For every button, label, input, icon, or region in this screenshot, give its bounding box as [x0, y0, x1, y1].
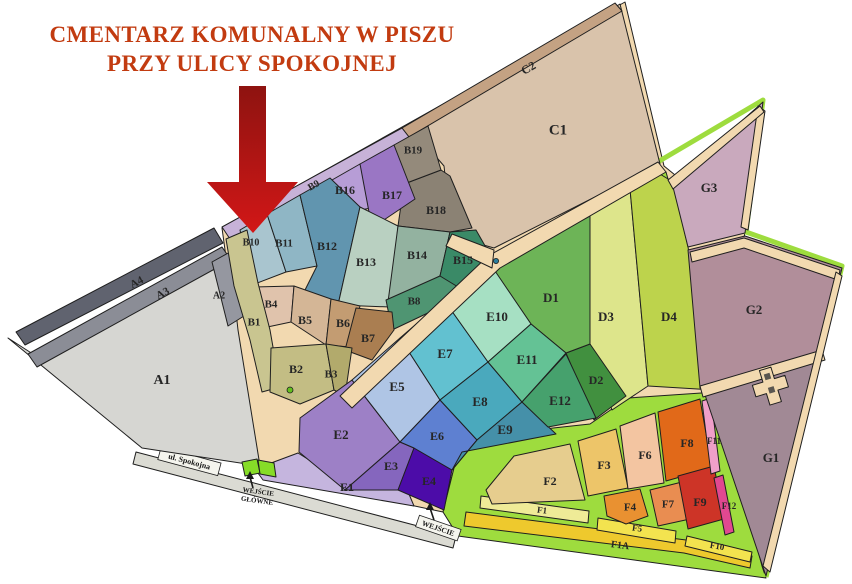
section-a1-label: A1: [153, 373, 170, 388]
section-a2-label: A2: [213, 290, 225, 301]
section-b5-label: B5: [298, 313, 312, 327]
section-b2-label: B2: [289, 362, 303, 376]
section-c1-label: C1: [549, 122, 567, 138]
main-gate-marker-right: [258, 460, 276, 477]
section-f2-label: F2: [543, 474, 556, 488]
section-b4-label: B4: [265, 299, 278, 311]
section-b19-label: B19: [404, 145, 423, 157]
cemetery-map-page: ul. Spokojna: [0, 0, 852, 584]
section-b17-label: B17: [382, 188, 402, 202]
section-b3-label: B3: [325, 369, 338, 381]
section-e5-label: E5: [389, 379, 405, 394]
section-f11-label: F11: [707, 436, 722, 446]
section-f7-label: F7: [662, 499, 675, 511]
section-d2-label: D2: [589, 373, 604, 387]
section-e9-label: E9: [497, 422, 513, 437]
section-f5-label: F5: [631, 522, 643, 533]
section-b13-label: B13: [356, 255, 376, 269]
section-b18-label: B18: [426, 203, 446, 217]
section-f1-label: F1: [537, 504, 549, 515]
section-e1-label: E1: [340, 480, 354, 494]
section-g1-label: G1: [763, 450, 780, 465]
section-b8-label: B8: [408, 296, 421, 308]
section-f8-label: F8: [680, 436, 693, 450]
section-f9-label: F9: [693, 495, 706, 509]
section-d1-label: D1: [543, 290, 559, 305]
main-entrance-annotation: WEJŚCIE GŁÓWNE: [241, 486, 276, 507]
section-f6-label: F6: [638, 448, 651, 462]
section-g3-label: G3: [701, 180, 718, 195]
section-b10-label: B10: [243, 237, 260, 248]
water-point-marker-green: [287, 387, 293, 393]
section-g2-label: G2: [746, 302, 763, 317]
section-d3-label: D3: [598, 309, 614, 324]
section-e12-label: E12: [549, 393, 571, 408]
section-b7-label: B7: [361, 331, 375, 345]
section-b16-label: B16: [335, 183, 355, 197]
section-e4-label: E4: [422, 474, 436, 488]
section-d4-label: D4: [661, 309, 677, 324]
water-point-marker-blue: [493, 258, 498, 263]
section-b15-label: B15: [453, 253, 473, 267]
cemetery-map: ul. Spokojna: [0, 0, 852, 584]
section-f4-label: F4: [624, 502, 637, 514]
page-title-line1: CMENTARZ KOMUNALNY W PISZU: [49, 22, 454, 47]
section-e6-label: E6: [430, 429, 444, 443]
section-e3-label: E3: [384, 459, 398, 473]
section-b1-label: B1: [248, 317, 261, 329]
section-b14-label: B14: [407, 248, 427, 262]
page-title-line2: PRZY ULICY SPOKOJNEJ: [107, 51, 397, 76]
section-f12-label: F12: [722, 501, 737, 511]
section-e10-label: E10: [486, 309, 508, 324]
section-e8-label: E8: [472, 394, 488, 409]
section-f3-label: F3: [597, 458, 610, 472]
section-b11-label: B11: [275, 238, 293, 250]
section-e2-label: E2: [333, 427, 348, 442]
section-e11-label: E11: [517, 352, 538, 367]
section-b6-label: B6: [336, 316, 350, 330]
section-e7-label: E7: [437, 346, 453, 361]
section-b12-label: B12: [317, 239, 337, 253]
section-f1a-label: F1A: [610, 539, 630, 552]
